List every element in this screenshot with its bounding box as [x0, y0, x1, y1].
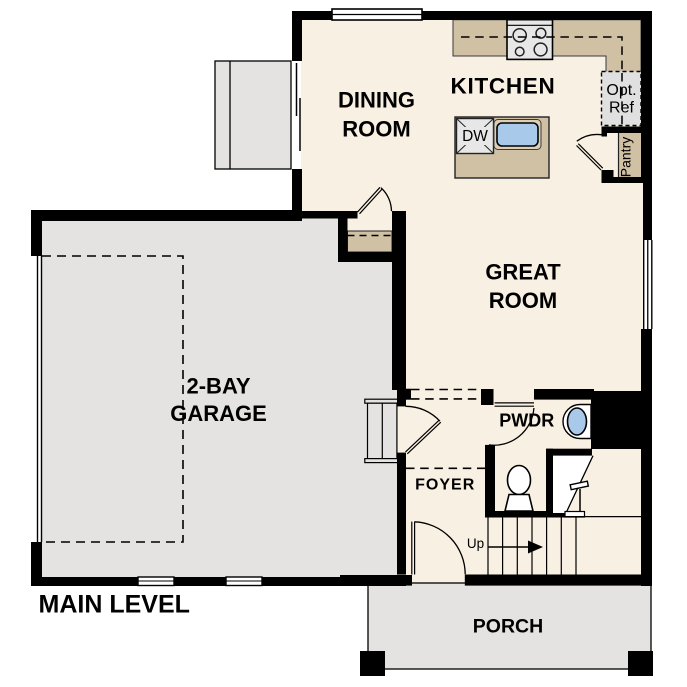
svg-text:DINING: DINING [338, 88, 415, 113]
svg-text:2-BAY: 2-BAY [187, 374, 251, 399]
svg-text:ROOM: ROOM [342, 117, 410, 142]
svg-text:PWDR: PWDR [499, 411, 554, 431]
svg-text:GREAT: GREAT [485, 260, 561, 285]
svg-text:ROOM: ROOM [489, 288, 557, 313]
svg-text:Pantry: Pantry [618, 137, 634, 177]
svg-text:Up: Up [467, 536, 484, 551]
svg-text:KITCHEN: KITCHEN [451, 74, 556, 99]
svg-text:PORCH: PORCH [473, 616, 543, 638]
svg-text:MAIN LEVEL: MAIN LEVEL [39, 591, 190, 619]
svg-text:FOYER: FOYER [415, 477, 475, 494]
svg-text:GARAGE: GARAGE [170, 401, 267, 426]
svg-text:DW: DW [462, 128, 488, 145]
